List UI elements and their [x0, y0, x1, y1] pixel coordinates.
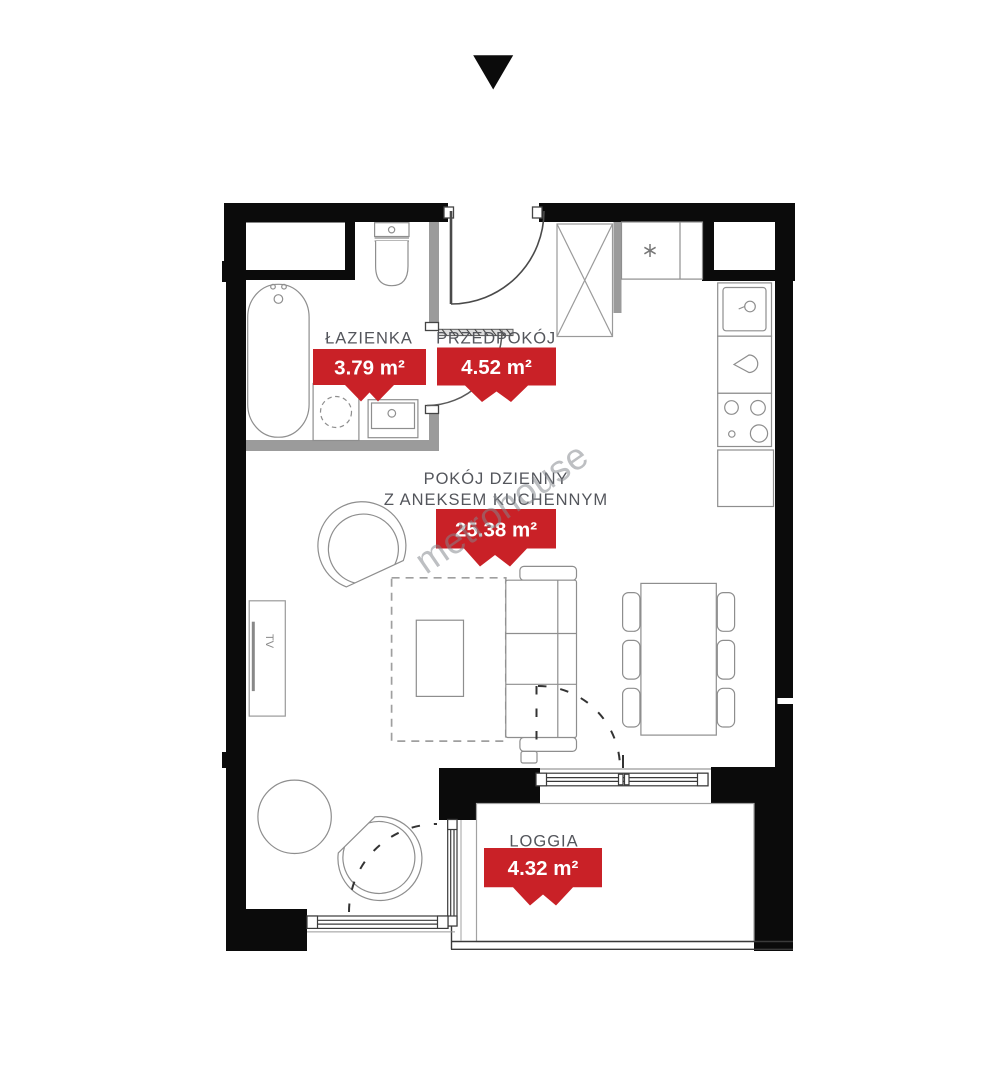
- svg-text:3.79 m²: 3.79 m²: [334, 357, 405, 380]
- svg-text:LOGGIA: LOGGIA: [509, 833, 578, 851]
- svg-text:TV: TV: [263, 634, 275, 649]
- svg-text:ŁAZIENKA: ŁAZIENKA: [325, 330, 413, 348]
- svg-text:4.52 m²: 4.52 m²: [461, 356, 532, 379]
- svg-text:PRZEDPOKÓJ: PRZEDPOKÓJ: [436, 329, 556, 348]
- svg-text:4.32 m²: 4.32 m²: [508, 857, 579, 880]
